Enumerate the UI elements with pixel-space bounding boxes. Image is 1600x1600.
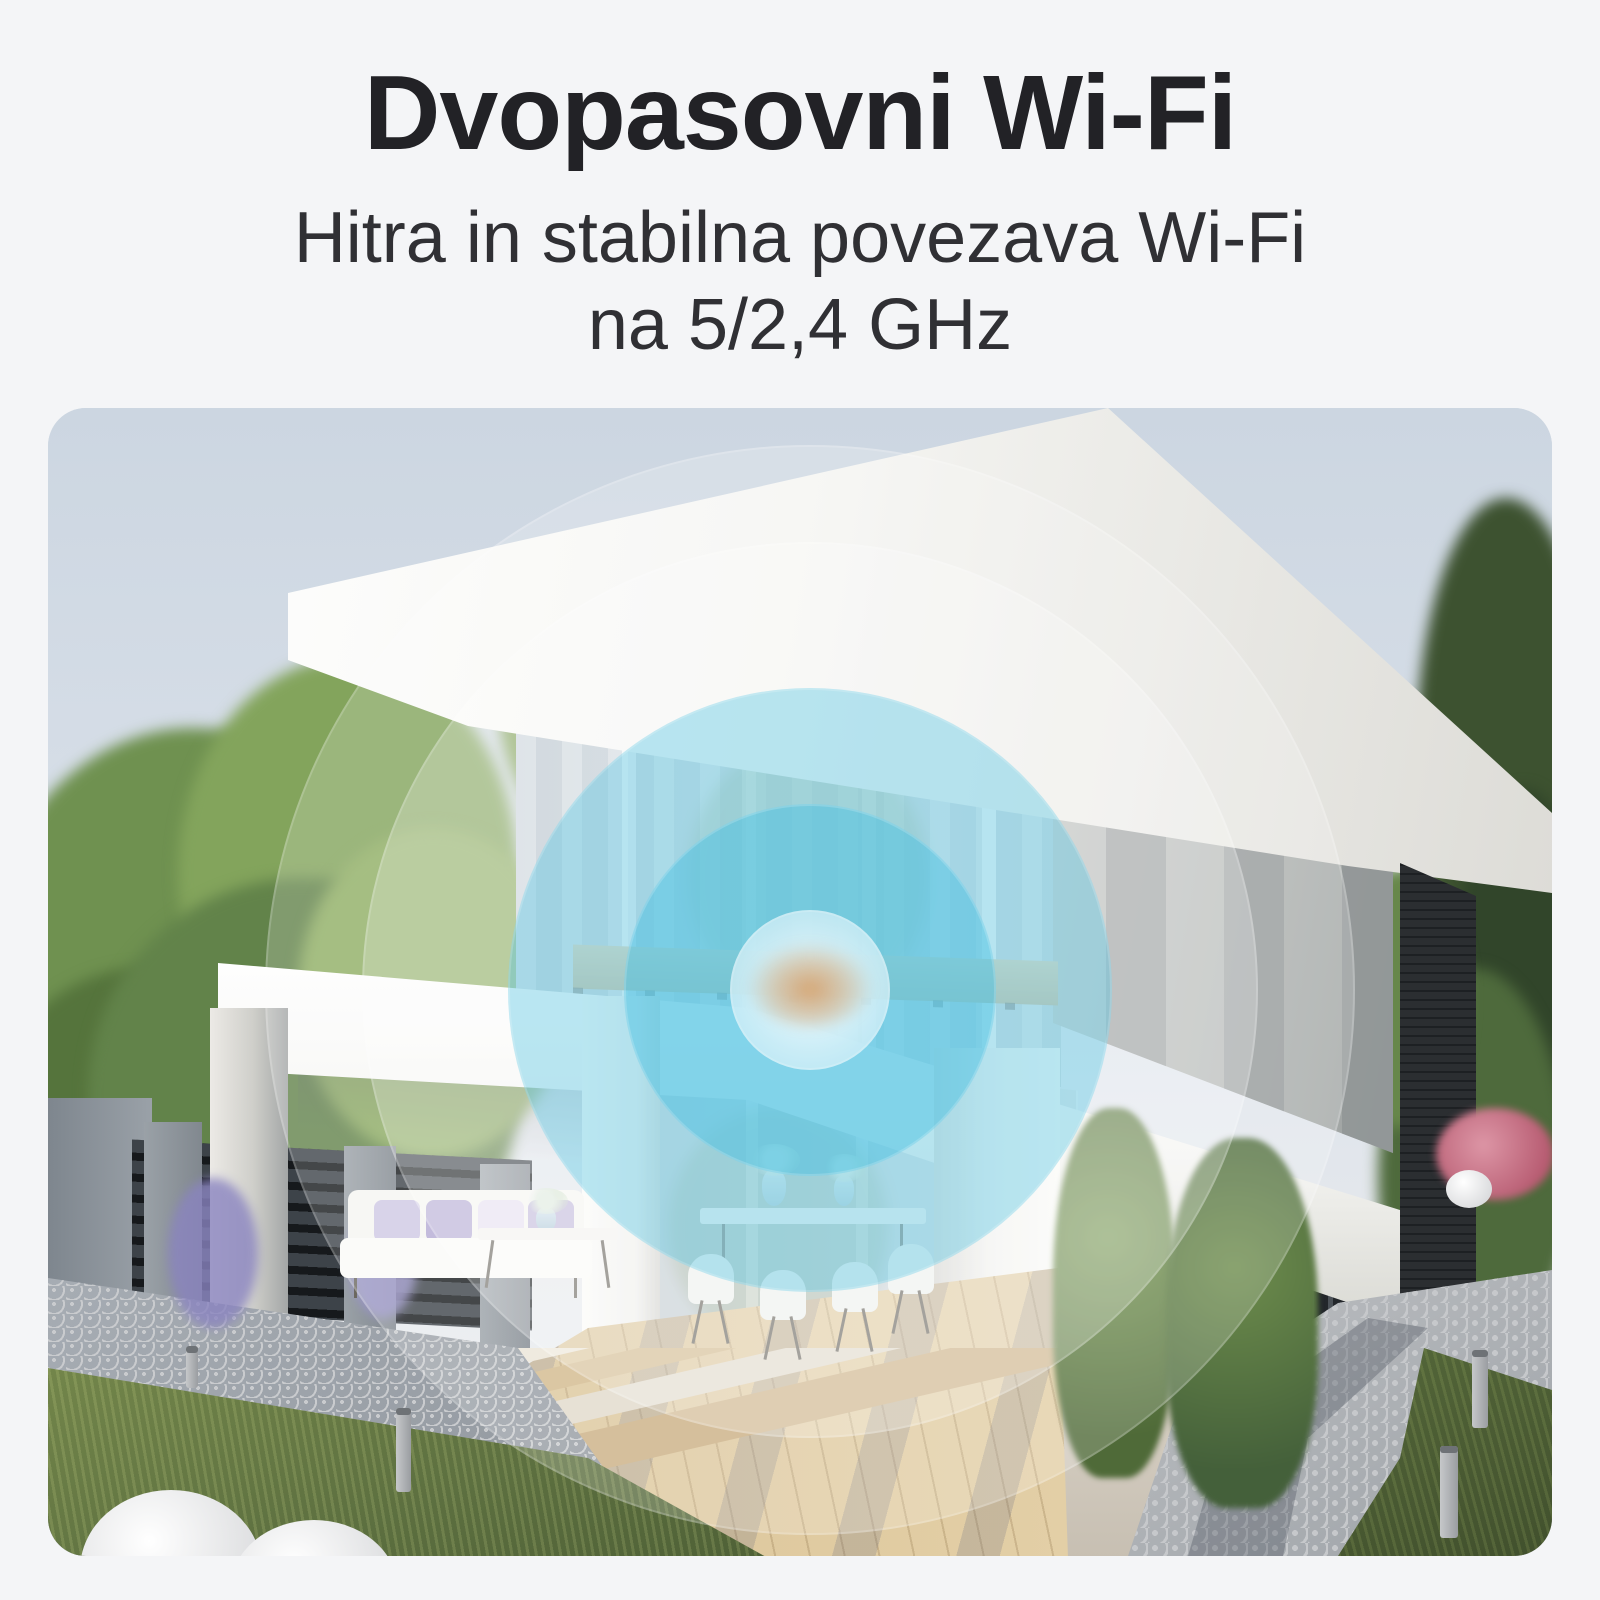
subtitle: Hitra in stabilna povezava Wi-Fi na 5/2,… (0, 195, 1600, 368)
page-title: Dvopasovni Wi-Fi (0, 58, 1600, 169)
subtitle-line-1: Hitra in stabilna povezava Wi-Fi (0, 195, 1600, 281)
page: { "header": { "title": "Dvopasovni Wi-Fi… (0, 0, 1600, 1600)
wifi-router-glow (748, 943, 872, 1027)
subtitle-line-2: na 5/2,4 GHz (0, 282, 1600, 368)
banner-header: Dvopasovni Wi-Fi Hitra in stabilna povez… (0, 0, 1600, 368)
hero-image (48, 408, 1552, 1556)
